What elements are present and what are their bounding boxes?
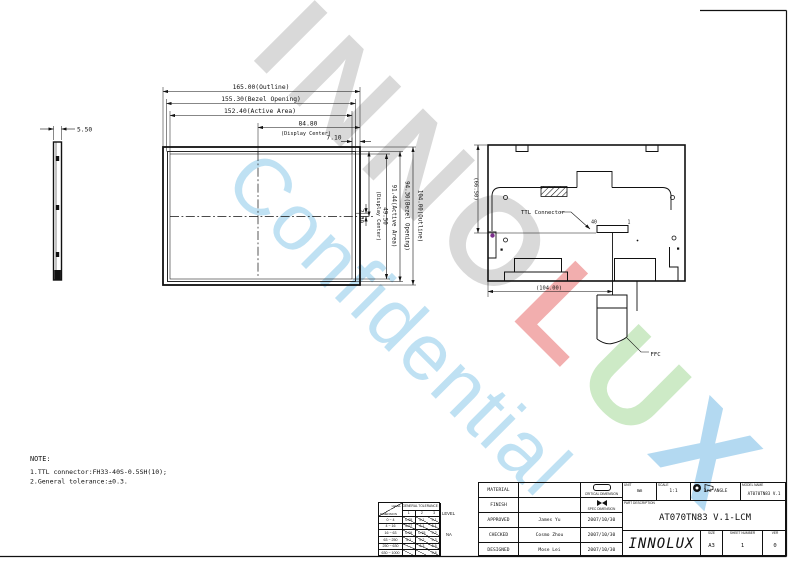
unit-cell: UNIT mm xyxy=(623,483,657,501)
tolerance-value: 0.1 xyxy=(416,517,429,524)
critical-dimension-cell: CRITICAL DIMENSION xyxy=(581,483,623,498)
tolerance-range: 16 ~ 63 xyxy=(379,530,403,537)
tolerance-value: 0.1 xyxy=(403,537,416,544)
size-cell: SIZE A3 xyxy=(701,531,723,557)
tolerance-value: 0.09 xyxy=(403,530,416,537)
tolerance-value: 0.07 xyxy=(403,524,416,531)
sheet-number-label: SHEET NUMBER xyxy=(730,532,755,535)
tolerance-value: 0.8 xyxy=(428,550,441,557)
ttl-connector-label: TTL Connector xyxy=(521,210,565,216)
third-angle-projection-icon xyxy=(691,483,715,493)
dim-v-bezel-label: 94.30(Bezel Opening) xyxy=(404,181,410,251)
unit-label: UNIT xyxy=(624,484,631,487)
unit-value: mm xyxy=(637,489,643,494)
tolerance-header: GENERAL TOLERANCE ± xyxy=(403,503,441,511)
sheet-number-cell: SHEET NUMBER 1 xyxy=(723,531,763,557)
back-height-dim-label: (66.50) xyxy=(473,177,479,201)
approved-label: APPROVED xyxy=(479,513,519,528)
display-center-caption: (Display Center) xyxy=(281,131,331,137)
back-purple-dot xyxy=(490,233,494,237)
note-title: NOTE: xyxy=(30,455,50,463)
tolerance-value: 0.2 xyxy=(416,537,429,544)
tolerance-table: LEVEL DIMENSION GENERAL TOLERANCE ± 1 2 … xyxy=(378,502,440,556)
watermark: INNOLUX Confidential xyxy=(210,0,794,541)
tolerance-value xyxy=(403,550,416,557)
designed-name: Mose Lei xyxy=(519,543,581,557)
dim-display-center-label: 84.80 xyxy=(299,121,318,128)
tolerance-range: 0 ~ 4 xyxy=(379,517,403,524)
spec-dimension-label: SPEC DIMENSION xyxy=(588,507,616,511)
scale-cell: SCALE 1:1 xyxy=(657,483,691,501)
approved-date: 2007/10/30 xyxy=(581,513,623,528)
tolerance-corner-dimension: DIMENSION xyxy=(380,512,397,516)
approved-name: James Yu xyxy=(519,513,581,528)
dim-v-offset-label: 2.30 xyxy=(358,209,364,223)
side-view-body xyxy=(54,142,62,280)
version-value: 0 xyxy=(773,543,776,549)
critical-dimension-icon xyxy=(593,484,611,491)
ttl-pin-1-label: 1 xyxy=(628,220,631,226)
checked-name: Cosmo Zhou xyxy=(519,528,581,543)
back-top-notches xyxy=(516,145,658,152)
drawing-sheet: { "watermark": { "letters": ["I","N","N"… xyxy=(0,0,800,561)
note-block: NOTE: 1.TTL connector:FH33-40S-0.5SH(10)… xyxy=(30,455,167,486)
model-name-value: AT070TN83 V.1 xyxy=(748,491,781,496)
tolerance-side-level: LEVEL xyxy=(442,511,455,516)
tolerance-value xyxy=(403,544,416,551)
tolerance-range: 63 ~ 250 xyxy=(379,537,403,544)
title-block: MATERIAL FINISH CRITICAL DIMENSION SPEC … xyxy=(478,482,786,556)
finish-label: FINISH xyxy=(479,498,519,513)
scale-label: SCALE xyxy=(658,484,668,487)
tolerance-value: 0.05 xyxy=(403,517,416,524)
dim-v-display-center-label: 49.50 xyxy=(382,207,388,225)
part-description-value: AT070TN83 V.1-LCM xyxy=(659,513,751,523)
spec-dimension-cell: SPEC DIMENSION xyxy=(581,498,623,513)
dim-outline-label: 165.00(Outline) xyxy=(233,84,290,91)
tolerance-range: 4 ~ 16 xyxy=(379,524,403,531)
dim-offset-label: 7.10 xyxy=(326,135,341,142)
tolerance-value: 0.3 xyxy=(428,537,441,544)
side-dim-extensions xyxy=(54,126,62,140)
part-description-cell: PART DESCRIPTION AT070TN83 V.1-LCM xyxy=(623,501,787,531)
dim-v-active-label: 91.44(Active Area) xyxy=(391,185,397,248)
version-cell: VER 0 xyxy=(763,531,787,557)
side-view-hooks xyxy=(54,156,61,280)
sheet-number-value: 1 xyxy=(741,543,744,549)
tolerance-value: 0.1 xyxy=(428,517,441,524)
tolerance-corner-cell: LEVEL DIMENSION xyxy=(379,503,403,517)
part-description-label: PART DESCRIPTION xyxy=(624,502,655,505)
critical-dimension-label: CRITICAL DIMENSION xyxy=(585,492,618,496)
third-angle-cell: 3rd ANGLE xyxy=(691,483,741,501)
tolerance-range: 250 ~ 630 xyxy=(379,544,403,551)
ttl-connector-body xyxy=(597,226,628,233)
scale-value: 1:1 xyxy=(669,489,677,494)
tolerance-value: 0.5 xyxy=(428,544,441,551)
checked-label: CHECKED xyxy=(479,528,519,543)
ttl-pin-40-label: 40 xyxy=(591,220,597,226)
tolerance-value: 0.2 xyxy=(428,530,441,537)
designed-date: 2007/10/30 xyxy=(581,543,623,557)
tolerance-value xyxy=(416,550,429,557)
tolerance-corner-level: LEVEL xyxy=(392,504,401,508)
tolerance-value: 0.1 xyxy=(428,524,441,531)
material-label: MATERIAL xyxy=(479,483,519,498)
side-thickness-dim: 5.50 xyxy=(77,127,92,134)
note-line-1: 1.TTL connector:FH33-40S-0.5SH(10); xyxy=(30,468,167,476)
tolerance-value: 0.1 xyxy=(416,524,429,531)
finish-value xyxy=(519,498,581,513)
material-value xyxy=(519,483,581,498)
spec-dimension-icon xyxy=(597,500,607,506)
tolerance-value: 0.15 xyxy=(416,530,429,537)
version-label: VER xyxy=(772,532,779,535)
checked-date: 2007/10/30 xyxy=(581,528,623,543)
dim-bezel-label: 155.30(Bezel Opening) xyxy=(221,96,301,103)
drawing-canvas: INNOLUX Confidential 5.50 xyxy=(0,0,800,561)
ffc-label: FFC xyxy=(651,352,661,358)
tolerance-side-na: NA xyxy=(446,532,452,537)
side-view: 5.50 xyxy=(40,126,92,280)
back-hatch-area xyxy=(541,187,567,197)
dim-active-label: 152.40(Active Area) xyxy=(224,108,296,115)
back-width-dim-label: (104.00) xyxy=(536,286,562,292)
note-line-2: 2.General tolerance:±0.3. xyxy=(30,478,128,486)
tolerance-value: 0.3 xyxy=(416,544,429,551)
size-value: A3 xyxy=(708,543,715,549)
designed-label: DESIGNED xyxy=(479,543,519,557)
tolerance-range: 630 ~ 1000 xyxy=(379,550,403,557)
model-name-cell: MODEL NAME AT070TN83 V.1 xyxy=(741,483,787,501)
dim-v-outline-label: 104.00(Outline) xyxy=(417,190,423,242)
display-center-caption-v: (Display Center) xyxy=(375,191,381,241)
model-name-label: MODEL NAME xyxy=(742,484,763,487)
innolux-logo: INNOLUX xyxy=(623,531,701,557)
size-label: SIZE xyxy=(708,532,715,535)
